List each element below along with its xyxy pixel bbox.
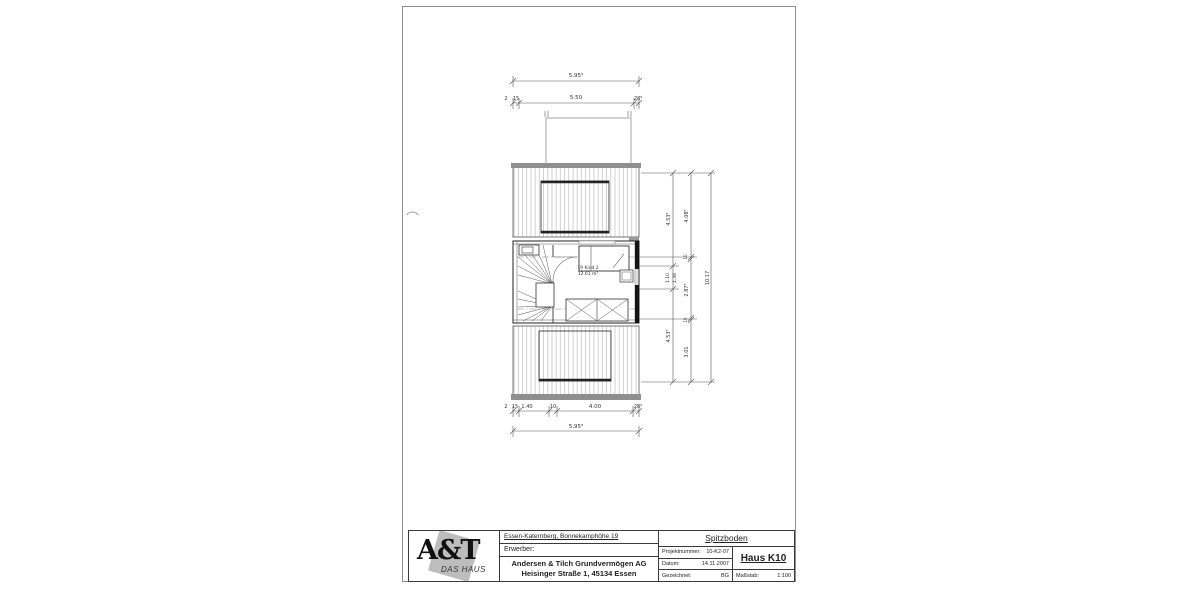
plan-title-text: Spitzboden xyxy=(705,533,748,543)
logo-main: A&T xyxy=(417,535,479,566)
meta-fields: Projektnummer: 10-K2-07 Datum: 14.11.200… xyxy=(659,547,733,581)
right-wall-pier xyxy=(635,241,639,269)
dim-bottom-1: 15 xyxy=(512,404,518,410)
room-area: 12.61 m² xyxy=(578,271,599,277)
field-massstab: Maßstab: 1:100 xyxy=(733,570,794,581)
field-gezeichnet: Gezeichnet: BG xyxy=(659,570,732,581)
bottom-dimensions xyxy=(510,406,642,437)
dim-right-mid-s2: 10 xyxy=(683,317,688,323)
dim-right-total: 10.17 xyxy=(705,271,711,285)
dim-bottom-3: 10 xyxy=(550,404,556,410)
projekt-label: Projektnummer: xyxy=(662,549,701,555)
gezeichnet-value: BG xyxy=(721,573,729,579)
massstab-value: 1:100 xyxy=(777,573,791,579)
stair-landing xyxy=(536,283,554,307)
dim-bottom-total: 5.95⁵ xyxy=(569,423,583,430)
sheet-info: Spitzboden Projektnummer: 10-K2-07 Datum… xyxy=(659,531,794,581)
dim-right-inner-bottom: 4.53⁵ xyxy=(666,329,672,342)
punch-hole xyxy=(407,212,418,215)
dim-right-inner-top: 4.53⁵ xyxy=(666,212,672,225)
room: 19 Kind 2 12.61 m² xyxy=(513,241,639,323)
nightstand xyxy=(620,270,633,282)
dim-right-inner-mid-a: 1.10 xyxy=(665,273,671,283)
dim-right-mid-bottom: 3.01 xyxy=(684,346,690,357)
dim-bottom-2: 1.40 xyxy=(521,404,532,410)
drawing-sheet: 5.95⁵ 2 15 5.50 28⁵ xyxy=(402,6,796,582)
lower-roof-eave xyxy=(511,394,641,400)
top-wall-window xyxy=(579,241,615,244)
floor-plan-drawing: 5.95⁵ 2 15 5.50 28⁵ xyxy=(403,7,795,530)
haus-number: Haus K10 xyxy=(733,547,794,570)
title-block: A&T DAS HAUS Essen-Katernberg, Bonnekamp… xyxy=(408,530,795,582)
company-block: Andersen & Tilch Grundvermögen AG Heisin… xyxy=(500,557,658,581)
right-wall-pier xyxy=(635,285,639,323)
dim-bottom-0: 2 xyxy=(504,404,507,410)
company-address: Heisinger Straße 1, 45134 Essen xyxy=(500,569,658,579)
plan-title: Spitzboden xyxy=(659,531,794,547)
datum-label: Datum: xyxy=(662,561,680,567)
haus-number-text: Haus K10 xyxy=(741,553,787,564)
storage-box xyxy=(566,299,628,321)
erwerber-label: Erwerber: xyxy=(500,544,658,557)
room-label: 19 Kind 2 xyxy=(577,265,598,271)
datum-value: 14.11.2007 xyxy=(702,561,729,567)
dim-top-right: 28⁵ xyxy=(634,96,642,102)
project-info: Essen-Katernberg, Bonnekamphöhe 19 Erwer… xyxy=(500,531,659,581)
dim-top-mid: 5.50 xyxy=(570,95,583,101)
dim-right-mid-center: 2.87⁵ xyxy=(684,283,690,296)
dim-bottom-4: 4.00 xyxy=(589,404,602,410)
top-dimensions xyxy=(510,76,642,109)
dim-right-mid-top: 4.08⁵ xyxy=(684,209,690,222)
dim-right-mid-s1: 10 xyxy=(683,254,688,260)
project-address: Essen-Katernberg, Bonnekamphöhe 19 xyxy=(500,531,658,544)
dim-bottom-5: 28⁵ xyxy=(634,404,642,410)
upper-dormer-outline xyxy=(545,111,631,164)
wall-fixture xyxy=(519,245,539,255)
massstab-label: Maßstab: xyxy=(736,573,759,579)
projekt-value: 10-K2-07 xyxy=(706,549,729,555)
gezeichnet-label: Gezeichnet: xyxy=(662,573,691,579)
field-projektnummer: Projektnummer: 10-K2-07 xyxy=(659,547,732,559)
upper-roof-ridge xyxy=(511,163,641,168)
logo-slogan: DAS HAUS xyxy=(441,565,486,574)
lower-roof xyxy=(511,326,641,400)
upper-roof xyxy=(511,163,641,241)
dim-right-inner-mid-b: 1.38 xyxy=(672,273,678,283)
field-datum: Datum: 14.11.2007 xyxy=(659,559,732,571)
company-name: Andersen & Tilch Grundvermögen AG xyxy=(500,559,658,569)
dim-top-a: 2 xyxy=(504,96,507,102)
company-logo: A&T DAS HAUS xyxy=(409,531,500,581)
dim-top-b: 15 xyxy=(513,96,519,102)
dim-top-total: 5.95⁵ xyxy=(569,72,583,79)
